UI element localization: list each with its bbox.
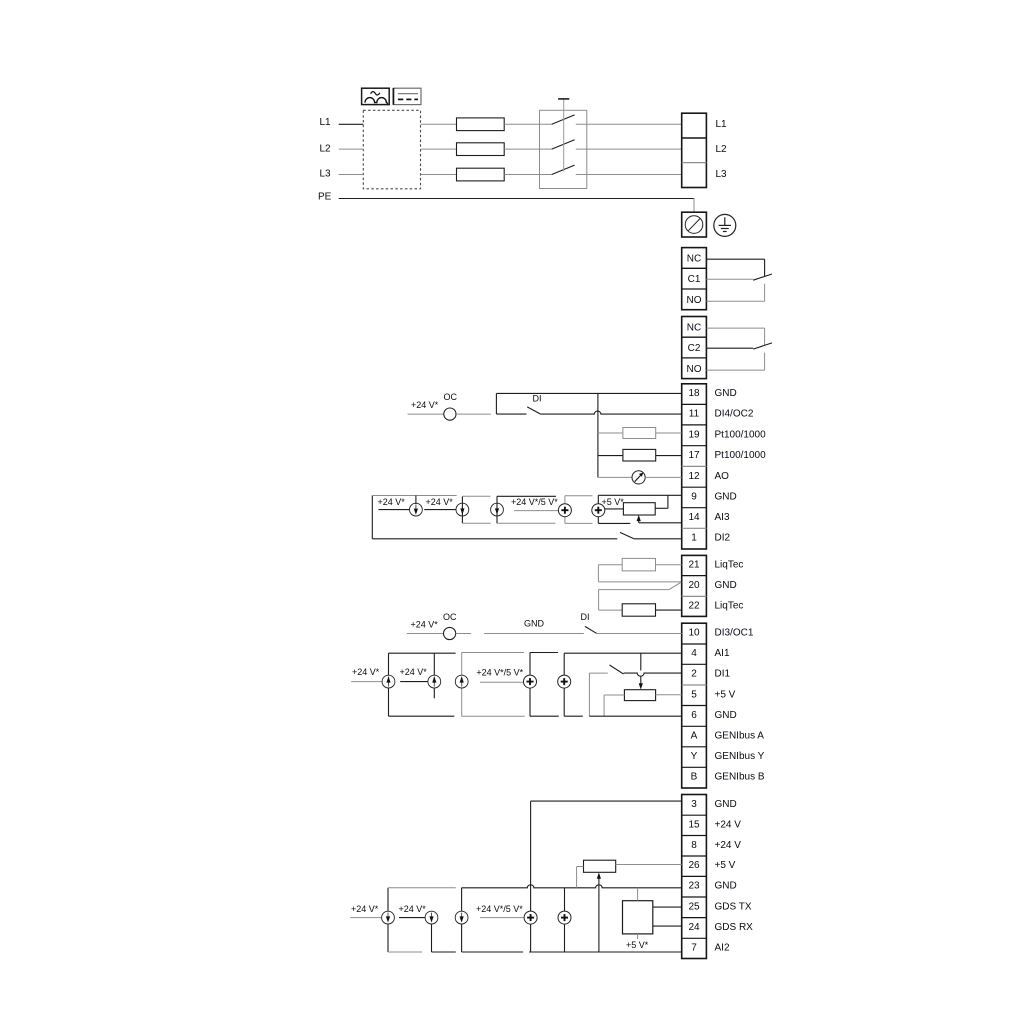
svg-text:GENIbus A: GENIbus A xyxy=(715,731,765,742)
svg-text:DI4/OC2: DI4/OC2 xyxy=(715,409,754,420)
svg-text:DI2: DI2 xyxy=(715,533,731,544)
svg-text:12: 12 xyxy=(688,471,700,482)
svg-text:LiqTec: LiqTec xyxy=(715,600,744,611)
svg-text:AI3: AI3 xyxy=(715,512,730,523)
svg-text:GND: GND xyxy=(715,492,737,503)
svg-text:19: 19 xyxy=(688,429,700,440)
svg-text:5: 5 xyxy=(691,689,697,700)
svg-text:+24 V: +24 V xyxy=(715,840,742,851)
svg-text:GND: GND xyxy=(715,580,737,591)
svg-text:+5 V: +5 V xyxy=(715,860,736,871)
svg-text:GENIbus B: GENIbus B xyxy=(715,772,765,783)
svg-text:OC: OC xyxy=(444,392,458,402)
svg-text:4: 4 xyxy=(691,648,697,659)
svg-text:21: 21 xyxy=(688,560,700,571)
svg-text:1: 1 xyxy=(691,533,697,544)
svg-text:7: 7 xyxy=(691,942,697,953)
svg-text:OC: OC xyxy=(443,612,457,622)
svg-text:NC: NC xyxy=(687,322,701,333)
svg-text:26: 26 xyxy=(688,860,700,871)
svg-text:L3: L3 xyxy=(320,168,332,179)
svg-text:GENIbus Y: GENIbus Y xyxy=(715,751,765,762)
svg-text:14: 14 xyxy=(688,512,700,523)
svg-text:+24 V*: +24 V* xyxy=(411,620,439,630)
svg-text:11: 11 xyxy=(689,409,700,420)
svg-text:3: 3 xyxy=(691,799,697,810)
svg-text:PE: PE xyxy=(318,192,332,203)
svg-text:8: 8 xyxy=(691,840,697,851)
svg-text:AI2: AI2 xyxy=(715,942,730,953)
svg-text:L3: L3 xyxy=(716,169,728,180)
svg-text:L1: L1 xyxy=(320,117,332,128)
svg-text:20: 20 xyxy=(688,580,700,591)
svg-text:+24 V*: +24 V* xyxy=(411,400,439,410)
svg-text:23: 23 xyxy=(688,881,700,892)
svg-text:A: A xyxy=(691,731,698,742)
svg-text:+24 V*: +24 V* xyxy=(400,667,428,677)
svg-text:Y: Y xyxy=(691,751,698,762)
svg-text:+24 V*: +24 V* xyxy=(352,667,380,677)
svg-text:+24 V*/5 V*: +24 V*/5 V* xyxy=(511,497,558,507)
svg-text:NC: NC xyxy=(687,254,701,265)
svg-text:C1: C1 xyxy=(688,274,701,285)
svg-text:Pt100/1000: Pt100/1000 xyxy=(715,429,767,440)
svg-text:GND: GND xyxy=(715,799,737,810)
svg-text:DI1: DI1 xyxy=(715,669,731,680)
svg-text:Pt100/1000: Pt100/1000 xyxy=(715,450,767,461)
svg-text:+24 V: +24 V xyxy=(715,819,742,830)
svg-text:24: 24 xyxy=(688,922,700,933)
svg-text:18: 18 xyxy=(688,388,700,399)
svg-text:+5 V: +5 V xyxy=(715,689,736,700)
svg-text:GDS RX: GDS RX xyxy=(715,922,754,933)
svg-text:GDS TX: GDS TX xyxy=(715,901,752,912)
svg-text:15: 15 xyxy=(688,819,700,830)
svg-text:17: 17 xyxy=(688,450,700,461)
svg-text:NO: NO xyxy=(687,364,702,375)
svg-text:+24 V*: +24 V* xyxy=(426,497,454,507)
svg-text:GND: GND xyxy=(715,388,737,399)
svg-text:DI: DI xyxy=(533,393,542,403)
svg-text:AO: AO xyxy=(715,471,730,482)
svg-text:GND: GND xyxy=(715,710,737,721)
svg-text:B: B xyxy=(691,772,698,783)
svg-text:NO: NO xyxy=(687,295,702,306)
svg-text:2: 2 xyxy=(691,669,697,680)
svg-text:6: 6 xyxy=(691,710,697,721)
svg-text:+5 V*: +5 V* xyxy=(602,497,625,507)
svg-text:22: 22 xyxy=(688,600,700,611)
svg-text:L1: L1 xyxy=(716,119,728,130)
svg-text:+24 V*: +24 V* xyxy=(351,904,379,914)
svg-text:+5 V*: +5 V* xyxy=(626,940,649,950)
svg-text:LiqTec: LiqTec xyxy=(715,560,744,571)
svg-text:DI: DI xyxy=(581,612,590,622)
svg-text:GND: GND xyxy=(715,881,737,892)
svg-text:AI1: AI1 xyxy=(715,648,730,659)
svg-text:+24 V*: +24 V* xyxy=(399,904,427,914)
svg-text:DI3/OC1: DI3/OC1 xyxy=(715,628,754,639)
svg-text:+24 V*: +24 V* xyxy=(378,497,406,507)
svg-text:GND: GND xyxy=(524,619,545,629)
svg-text:10: 10 xyxy=(688,628,700,639)
svg-text:25: 25 xyxy=(688,901,700,912)
svg-text:L2: L2 xyxy=(320,143,332,154)
svg-text:L2: L2 xyxy=(716,144,728,155)
svg-text:C2: C2 xyxy=(688,343,701,354)
svg-text:+24 V*/5 V*: +24 V*/5 V* xyxy=(476,904,523,914)
svg-text:9: 9 xyxy=(691,492,697,503)
svg-text:+24 V*/5 V*: +24 V*/5 V* xyxy=(476,668,523,678)
